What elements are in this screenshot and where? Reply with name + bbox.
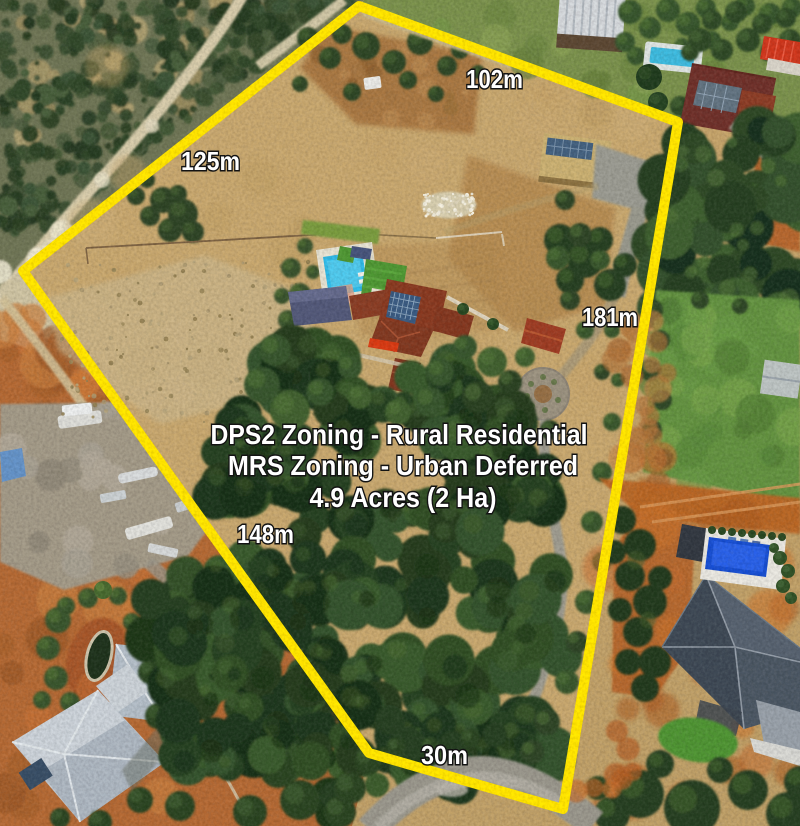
svg-text:MRS Zoning - Urban Deferred: MRS Zoning - Urban Deferred [228, 450, 578, 481]
svg-text:181m: 181m [582, 302, 638, 332]
svg-text:125m: 125m [181, 146, 240, 176]
svg-text:4.9 Acres (2 Ha): 4.9 Acres (2 Ha) [310, 482, 497, 513]
svg-text:30m: 30m [421, 740, 468, 770]
svg-text:102m: 102m [466, 64, 523, 94]
svg-text:148m: 148m [237, 519, 294, 549]
svg-text:DPS2 Zoning - Rural Residentia: DPS2 Zoning - Rural Residential [211, 419, 588, 450]
